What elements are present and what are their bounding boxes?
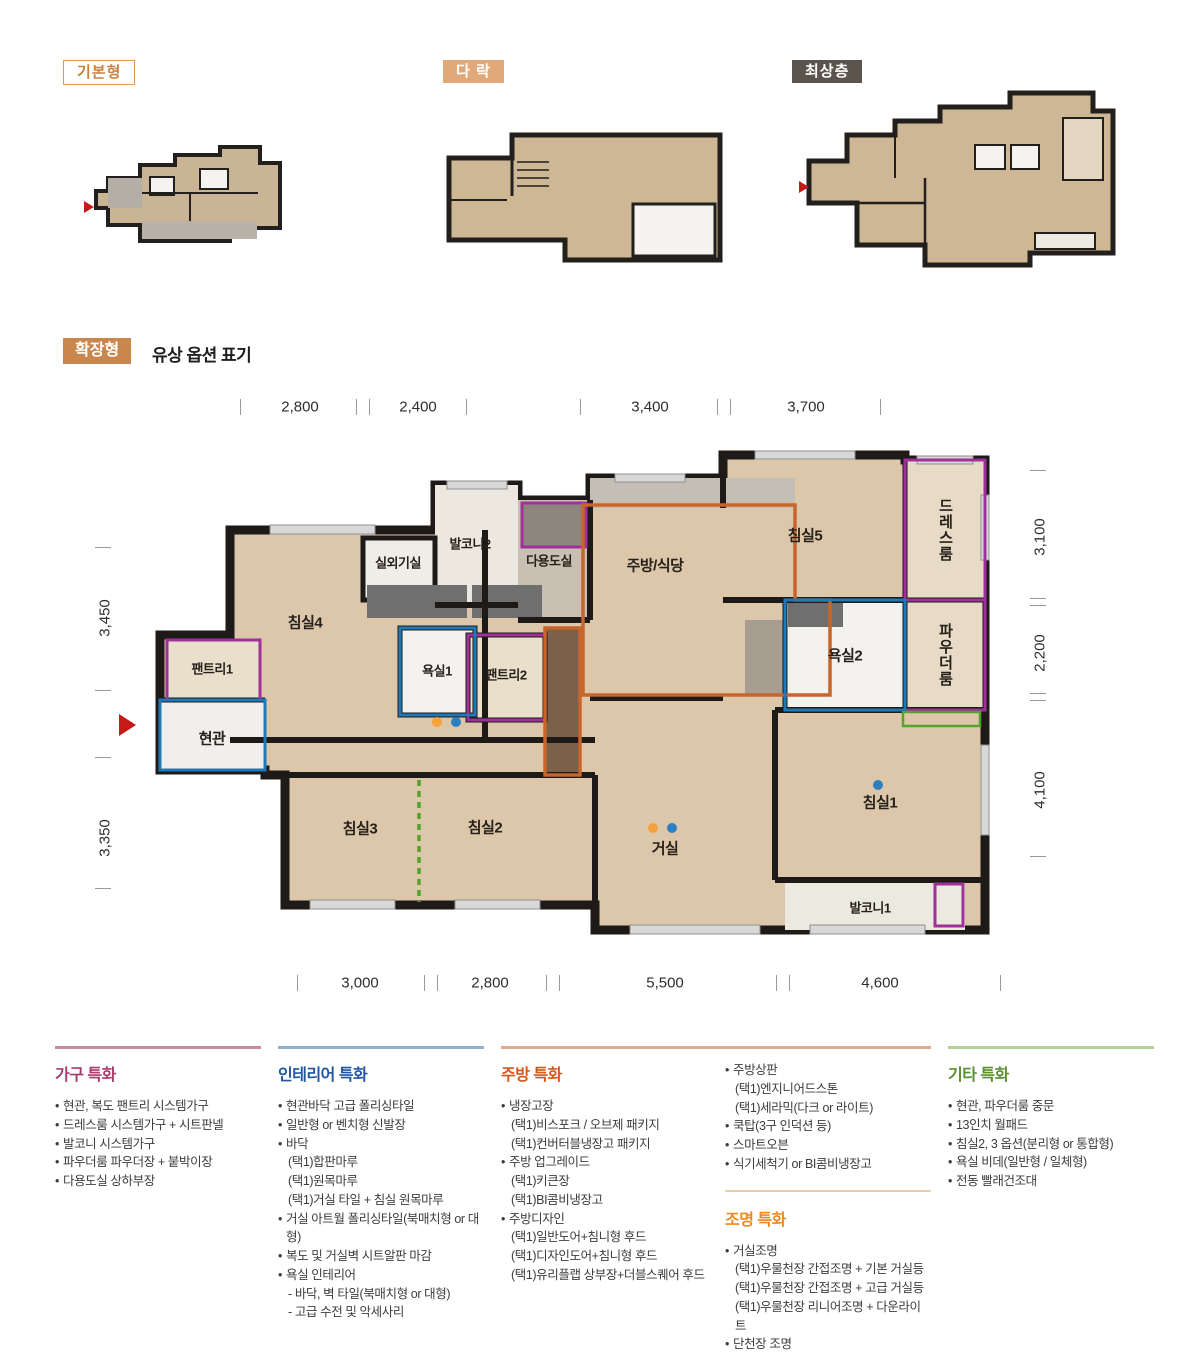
bullet: • [948,1172,952,1191]
mini-plan-attic-label: 다 락 [443,60,504,83]
bullet: • [55,1097,59,1116]
dim-top-2: 2,400 [399,399,437,416]
room-label-pantry1: 팬트리1 [191,659,232,678]
bullet: • [725,1335,729,1354]
feature-column-kitchen: 주방 특화 •냉장고장(택1)비스포크 / 오브제 패키지(택1)컨버터블냉장고… [501,1061,707,1354]
feature-item: •파우더룸 파우더장 + 붙박이장 [55,1153,261,1172]
feature-item: (택1)우물천장 간접조명 + 기본 거실등 [725,1260,931,1279]
bullet: • [725,1136,729,1155]
feature-list-kitchen-cont: •주방상판(택1)엔지니어드스톤(택1)세라믹(다크 or 라이트)•쿡탑(3구… [725,1061,931,1174]
column-accent-line [501,1046,931,1049]
room-label-balcony1: 발코니1 [849,898,890,917]
bullet: • [55,1135,59,1154]
feature-item: (택1)엔지니어드스톤 [725,1080,931,1099]
feature-item: •쿡탑(3구 인덕션 등) [725,1117,931,1136]
room-label-kitchen-dining: 주방/식당 [627,555,684,576]
column-accent-line [278,1046,484,1049]
bullet: • [278,1097,282,1116]
mini-plan-attic [437,110,732,277]
dim-right-1: 3,100 [1032,518,1049,556]
feature-item: •현관, 파우더룸 중문 [948,1097,1154,1116]
room-label-dress-room: 드레스룸 [935,498,956,562]
dim-bottom-4: 4,600 [861,975,899,992]
room-label-powder-room: 파우더룸 [935,623,956,687]
feature-section: 가구 특화 •현관, 복도 팬트리 시스템가구•드레스룸 시스템가구 + 시트판… [55,1046,1155,1354]
feature-title-furniture: 가구 특화 [55,1061,261,1085]
feature-item: (택1)컨버터블냉장고 패키지 [501,1135,707,1154]
bullet: • [55,1153,59,1172]
feature-item: •거실 아트월 폴리싱타일(북매치형 or 대형) [278,1210,484,1248]
feature-item: (택1)합판마루 [278,1153,484,1172]
mini-plan-topfloor [795,83,1127,280]
room-label-utility: 다용도실 [526,551,572,570]
bullet: • [948,1097,952,1116]
feature-item: •식기세척기 or BI콤비냉장고 [725,1155,931,1174]
room-label-outdoor-unit: 실외기실 [375,553,421,572]
feature-list-etc: •현관, 파우더룸 중문•13인치 월패드•침실2, 3 옵션(분리형 or 통… [948,1097,1154,1191]
bullet: • [55,1172,59,1191]
bullet: • [501,1153,505,1172]
feature-item: (택1)우물천장 리니어조명 + 다운라이트 [725,1298,931,1336]
dim-left-1: 3,450 [97,599,114,637]
feature-item: •욕실 인테리어 [278,1266,484,1285]
feature-item: (택1)거실 타일 + 침실 원목마루 [278,1191,484,1210]
bullet: • [948,1153,952,1172]
feature-title-etc: 기타 특화 [948,1061,1154,1085]
room-label-bedroom3: 침실3 [343,818,377,839]
bullet: • [278,1266,282,1285]
feature-item: (택1)일반도어+침니형 후드 [501,1228,707,1247]
room-label-living: 거실 [652,838,679,859]
feature-item: (택1)비스포크 / 오브제 패키지 [501,1116,707,1135]
room-label-bedroom1: 침실1 [863,792,897,813]
feature-item: •욕실 비데(일반형 / 일체형) [948,1153,1154,1172]
feature-item: •복도 및 거실벽 시트알판 마감 [278,1247,484,1266]
room-label-bedroom2: 침실2 [468,817,502,838]
feature-list-interior: •현관바닥 고급 폴리싱타일•일반형 or 벤치형 신발장•바닥(택1)합판마루… [278,1097,484,1322]
feature-item: •주방디자인 [501,1210,707,1229]
feature-item: •냉장고장 [501,1097,707,1116]
bullet: • [948,1116,952,1135]
bullet: • [278,1135,282,1154]
feature-item: •단천장 조명 [725,1335,931,1354]
feature-column-kitchen-cont: •주방상판(택1)엔지니어드스톤(택1)세라믹(다크 or 라이트)•쿡탑(3구… [725,1061,931,1354]
dim-bottom-2: 2,800 [471,975,509,992]
feature-column-kitchen-group: 주방 특화 •냉장고장(택1)비스포크 / 오브제 패키지(택1)컨버터블냉장고… [501,1046,931,1354]
bullet: • [948,1135,952,1154]
mini-plan-basic-label: 기본형 [63,60,135,85]
feature-column-interior: 인테리어 특화 •현관바닥 고급 폴리싱타일•일반형 or 벤치형 신발장•바닥… [278,1046,484,1354]
bullet: • [501,1210,505,1229]
feature-item: (택1)원목마루 [278,1172,484,1191]
bullet: • [278,1116,282,1135]
bullet: • [278,1210,282,1248]
entrance-arrow [119,714,136,736]
feature-item: (택1)유리플랩 상부장+더블스퀘어 후드 [501,1266,707,1285]
feature-item: (택1)BI콤비냉장고 [501,1191,707,1210]
feature-column-furniture: 가구 특화 •현관, 복도 팬트리 시스템가구•드레스룸 시스템가구 + 시트판… [55,1046,261,1354]
feature-list-kitchen: •냉장고장(택1)비스포크 / 오브제 패키지(택1)컨버터블냉장고 패키지•주… [501,1097,707,1285]
feature-item: •13인치 월패드 [948,1116,1154,1135]
dim-bottom-3: 5,500 [646,975,684,992]
bullet: • [725,1117,729,1136]
feature-item: (택1)우물천장 간접조명 + 고급 거실등 [725,1279,931,1298]
dim-top-3: 3,400 [631,399,669,416]
feature-item: •발코니 시스템가구 [55,1135,261,1154]
room-label-bedroom4: 침실4 [288,612,322,633]
column-accent-line [948,1046,1154,1049]
feature-item: - 바닥, 벽 타일(북매치형 or 대형) [278,1285,484,1304]
feature-item: •현관, 복도 팬트리 시스템가구 [55,1097,261,1116]
section-title: 유상 옵션 표기 [152,341,251,366]
dim-top-4: 3,700 [787,399,825,416]
feature-item: - 고급 수전 및 악세사리 [278,1303,484,1322]
feature-column-etc: 기타 특화 •현관, 파우더룸 중문•13인치 월패드•침실2, 3 옵션(분리… [948,1046,1154,1354]
feature-item: •드레스룸 시스템가구 + 시트판넬 [55,1116,261,1135]
room-label-bath1: 욕실1 [422,661,452,680]
bullet: • [725,1242,729,1261]
mini-plan-basic [80,133,295,266]
section-badge: 확장형 [63,338,131,364]
bullet: • [725,1155,729,1174]
bullet: • [725,1061,729,1080]
bullet: • [278,1247,282,1266]
feature-item: •전동 빨래건조대 [948,1172,1154,1191]
feature-item: •일반형 or 벤치형 신발장 [278,1116,484,1135]
dim-right-2: 2,200 [1032,634,1049,672]
bullet: • [55,1116,59,1135]
feature-item: •주방 업그레이드 [501,1153,707,1172]
room-label-bath2: 욕실2 [828,645,862,666]
dim-bottom-1: 3,000 [341,975,379,992]
room-label-pantry2: 팬트리2 [485,665,526,684]
room-label-balcony2: 발코니2 [449,534,490,553]
main-floorplan: 침실4 실외기실 발코니2 다용도실 주방/식당 침실5 드레스룸 팬트리1 욕… [155,450,1015,965]
bullet: • [501,1097,505,1116]
feature-item: •주방상판 [725,1061,931,1080]
mini-basic-entry-arrow [84,201,94,213]
feature-item: •스마트오븐 [725,1136,931,1155]
feature-item: •바닥 [278,1135,484,1154]
floorplan-drawing [155,450,1015,965]
feature-item: •거실조명 [725,1242,931,1261]
feature-title-interior: 인테리어 특화 [278,1061,484,1085]
feature-item: (택1)세라믹(다크 or 라이트) [725,1099,931,1118]
room-label-bedroom5: 침실5 [788,525,822,546]
dim-right-3: 4,100 [1032,771,1049,809]
dim-left-2: 3,350 [97,819,114,857]
feature-item: •침실2, 3 옵션(분리형 or 통합형) [948,1135,1154,1154]
feature-title-kitchen: 주방 특화 [501,1061,707,1085]
feature-item: •현관바닥 고급 폴리싱타일 [278,1097,484,1116]
column-accent-line [55,1046,261,1049]
room-label-entrance: 현관 [199,728,226,749]
feature-item: (택1)키큰장 [501,1172,707,1191]
lighting-divider [725,1190,931,1192]
dim-top-1: 2,800 [281,399,319,416]
feature-item: (택1)디자인도어+침니형 후드 [501,1247,707,1266]
feature-item: •다용도실 상하부장 [55,1172,261,1191]
mini-plan-topfloor-label: 최상층 [792,60,862,83]
feature-list-lighting: •거실조명(택1)우물천장 간접조명 + 기본 거실등(택1)우물천장 간접조명… [725,1242,931,1354]
feature-title-lighting: 조명 특화 [725,1206,931,1230]
feature-list-furniture: •현관, 복도 팬트리 시스템가구•드레스룸 시스템가구 + 시트판넬•발코니 … [55,1097,261,1191]
